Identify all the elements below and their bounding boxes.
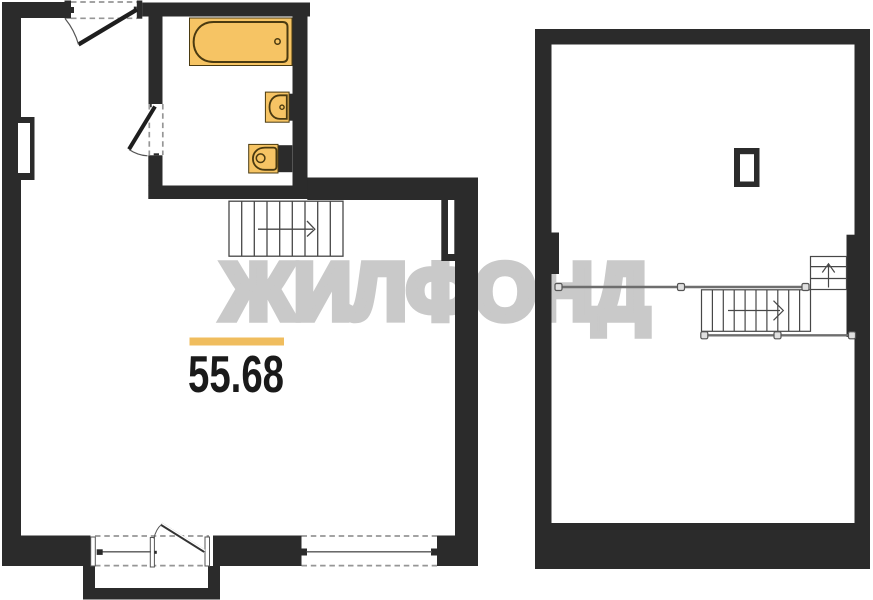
svg-text:55.68: 55.68 — [188, 346, 284, 404]
svg-text:ЖИЛФОНД: ЖИЛФОНД — [222, 247, 650, 336]
